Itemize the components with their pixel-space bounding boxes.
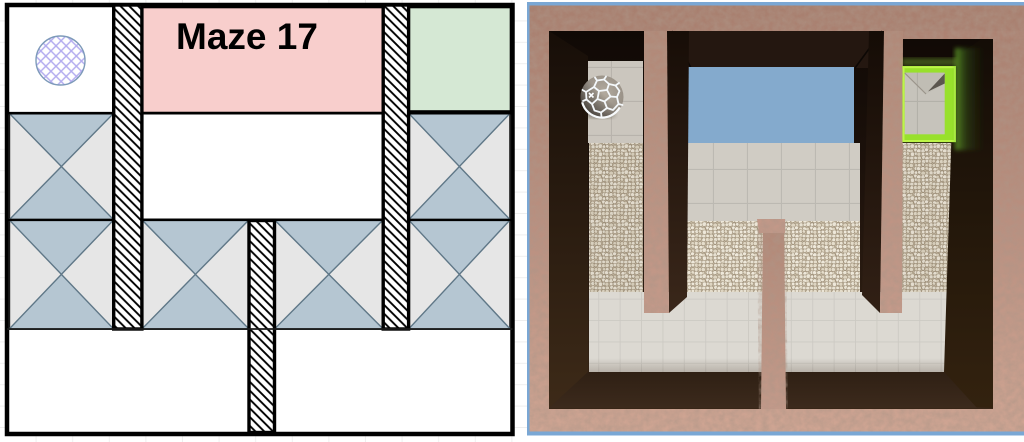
svg-text:Maze 17: Maze 17 [176,16,318,57]
